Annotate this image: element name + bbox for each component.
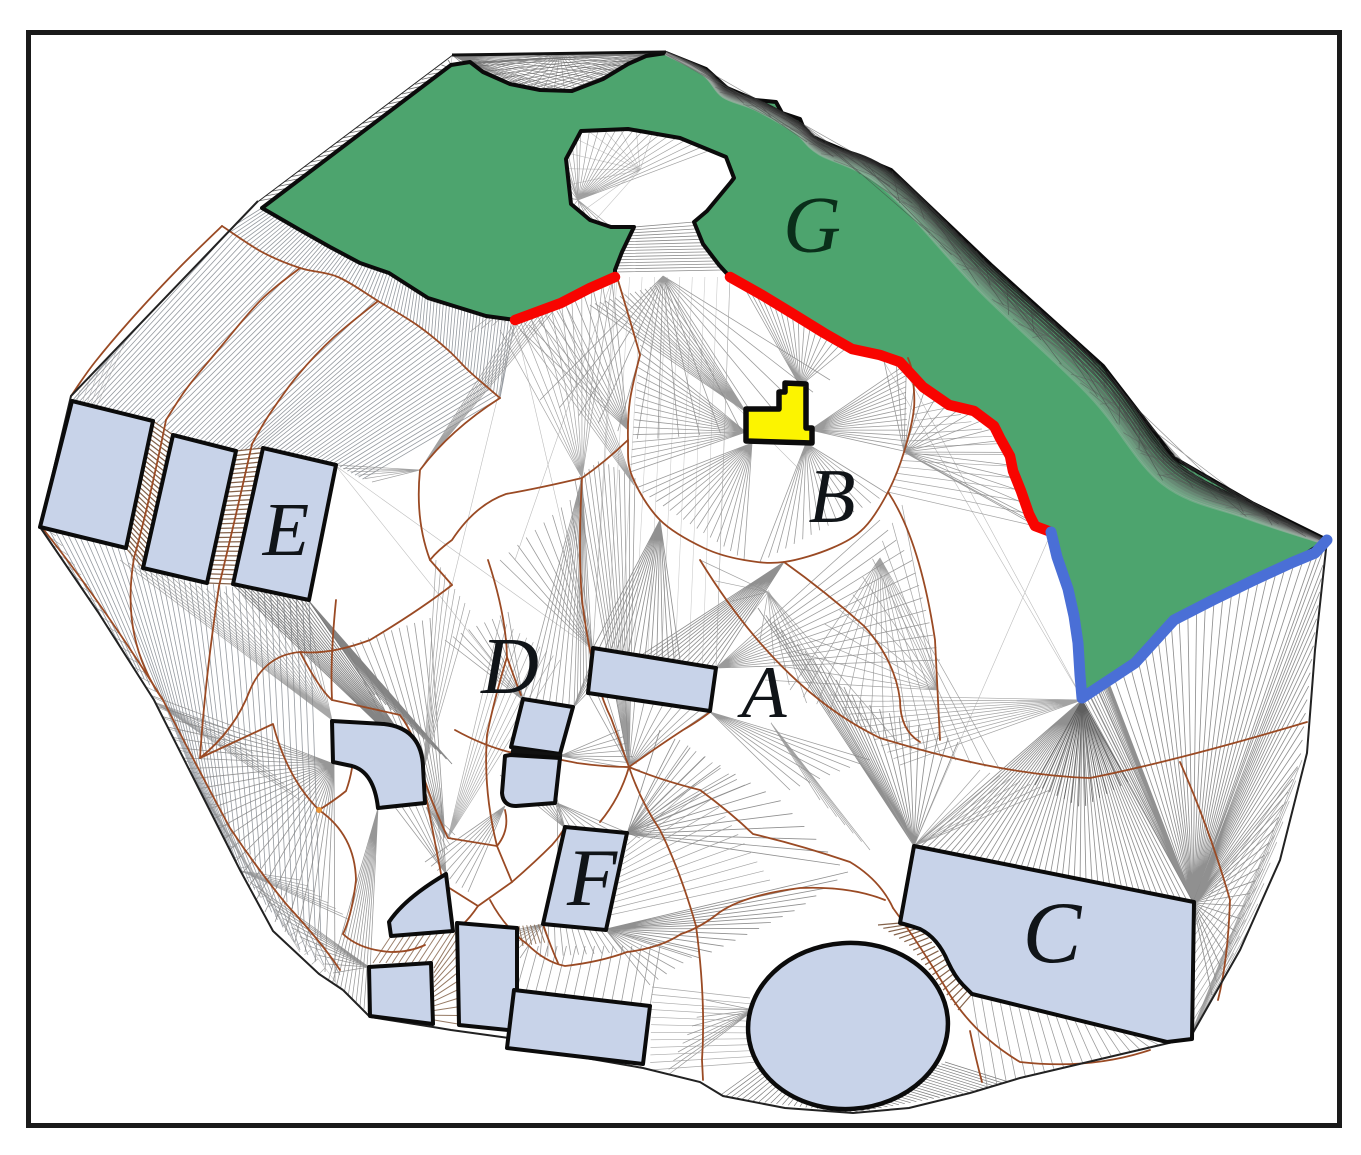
svg-text:B: B: [808, 453, 855, 539]
svg-text:D: D: [480, 623, 539, 711]
svg-text:F: F: [566, 832, 618, 923]
svg-text:G: G: [783, 182, 841, 270]
svg-text:E: E: [262, 488, 309, 572]
svg-text:A: A: [736, 652, 787, 734]
svg-text:C: C: [1023, 885, 1083, 982]
